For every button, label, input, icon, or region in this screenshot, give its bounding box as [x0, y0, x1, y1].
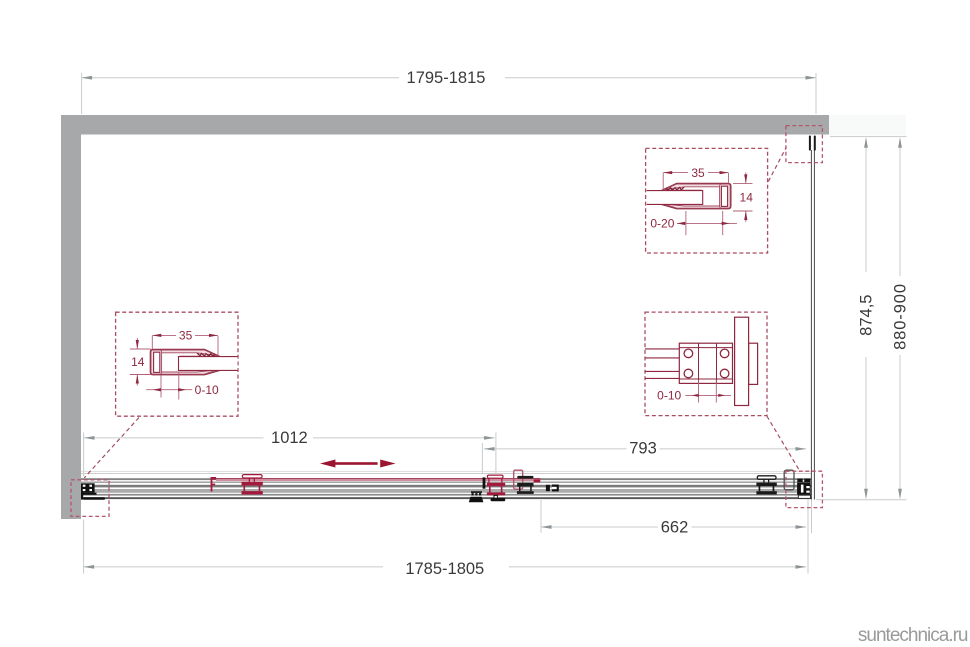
- svg-text:662: 662: [661, 519, 689, 537]
- svg-text:0-10: 0-10: [195, 383, 219, 397]
- svg-text:0-20: 0-20: [650, 217, 674, 231]
- svg-text:1785-1805: 1785-1805: [405, 560, 484, 578]
- svg-text:874,5: 874,5: [857, 295, 875, 336]
- svg-text:0-10: 0-10: [657, 389, 681, 403]
- svg-text:793: 793: [629, 440, 657, 458]
- svg-text:14: 14: [740, 191, 754, 205]
- svg-text:suntechnica.ru: suntechnica.ru: [858, 625, 968, 646]
- svg-text:14: 14: [131, 355, 145, 369]
- svg-text:1012: 1012: [271, 429, 308, 447]
- svg-text:35: 35: [179, 329, 193, 343]
- svg-text:880-900: 880-900: [891, 283, 909, 350]
- svg-text:35: 35: [691, 166, 705, 180]
- svg-text:1795-1815: 1795-1815: [407, 69, 486, 87]
